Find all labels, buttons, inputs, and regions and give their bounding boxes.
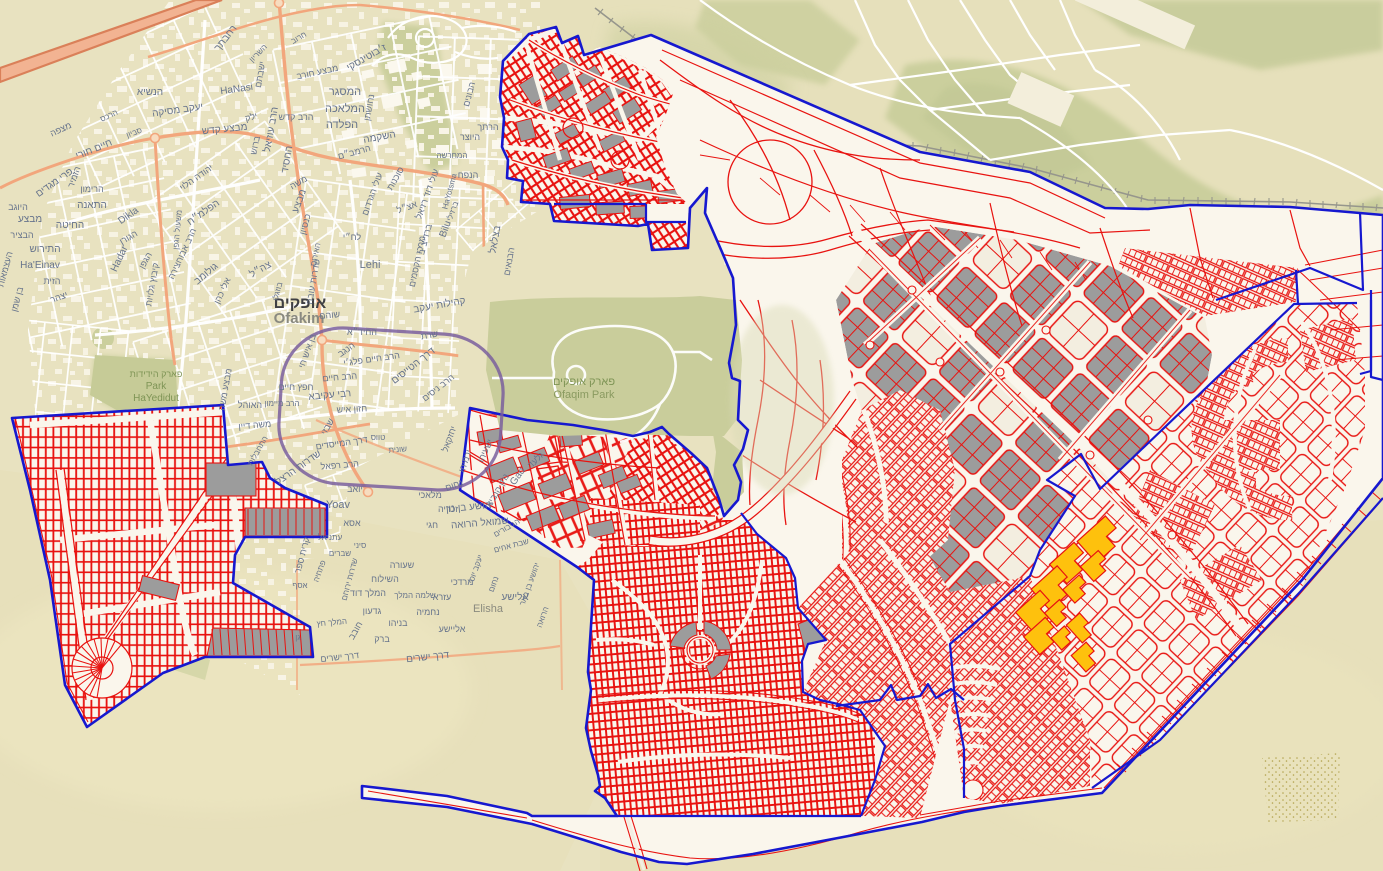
svg-text:היוצר: היוצר [460,132,480,142]
svg-text:Ofaqim Park: Ofaqim Park [553,389,615,401]
svg-text:המלאכה: המלאכה [325,102,365,115]
svg-text:Yoav: Yoav [326,499,351,511]
svg-text:Ha'Einav: Ha'Einav [20,260,60,271]
svg-text:יואב: יואב [347,484,363,494]
svg-text:החיטה: החיטה [56,220,84,231]
svg-text:עתניאל: עתניאל [318,533,343,542]
svg-text:הרב מיימון: הרב מיימון [264,399,299,408]
svg-text:Park: Park [146,381,168,392]
svg-text:שברים: שברים [329,549,351,558]
svg-text:הפלדה: הפלדה [326,118,358,131]
svg-text:מבצע: מבצע [18,214,42,225]
svg-text:פארק אופקים: פארק אופקים [553,376,615,388]
svg-text:הנשיא: הנשיא [137,87,163,98]
svg-text:הרב קדש: הרב קדש [279,112,314,122]
svg-text:היוגב: היוגב [8,202,28,212]
svg-text:Ofakim: Ofakim [274,310,325,327]
svg-text:מלאכי: מלאכי [418,490,442,500]
svg-text:הנפח: הנפח [458,170,479,180]
svg-text:טווס: טווס [371,433,386,442]
svg-text:הרתך: הרתך [477,122,498,132]
svg-text:שוהם: שוהם [319,309,341,321]
svg-text:לח״י: לח״י [343,232,362,242]
svg-text:Elisha: Elisha [473,603,504,615]
svg-text:עזרא: עזרא [433,592,452,602]
svg-text:סיני: סיני [354,541,367,550]
svg-text:בניהו: בניהו [388,618,408,628]
svg-text:הבציר: הבציר [10,230,33,240]
svg-text:התירוש: התירוש [29,244,60,255]
svg-text:Lehi: Lehi [360,259,381,271]
svg-text:שלמה המלך: שלמה המלך [394,591,436,600]
svg-text:שעורה: שעורה [390,560,415,570]
svg-text:המלך דוד: המלך דוד [350,588,386,598]
svg-text:גן: גן [295,633,301,642]
svg-text:חזון איש: חזון איש [336,403,367,415]
svg-text:הרימון: הרימון [80,184,104,194]
svg-text:גדעון: גדעון [363,606,382,616]
svg-text:ברק: ברק [374,634,390,644]
svg-text:חפץ חיים: חפץ חיים [279,382,314,392]
svg-text:התאנה: התאנה [77,200,107,211]
svg-text:אסף: אסף [292,581,307,590]
svg-text:החיד״א: החיד״א [347,327,377,337]
svg-text:אליישע: אליישע [439,624,466,634]
svg-text:HaYedidut: HaYedidut [133,393,179,404]
svg-text:חגי: חגי [426,520,438,530]
svg-text:השילוח: השילוח [371,574,399,584]
svg-text:שונית: שונית [388,444,407,455]
svg-text:פארק הידידות: פארק הידידות [130,369,183,379]
svg-text:נחמיה: נחמיה [416,607,439,617]
svg-text:הזית: הזית [44,276,61,286]
svg-text:אסא: אסא [343,518,361,528]
svg-text:האוהל: האוהל [238,400,262,410]
svg-text:המחרשה: המחרשה [436,151,467,160]
svg-text:המסגר: המסגר [329,86,361,98]
